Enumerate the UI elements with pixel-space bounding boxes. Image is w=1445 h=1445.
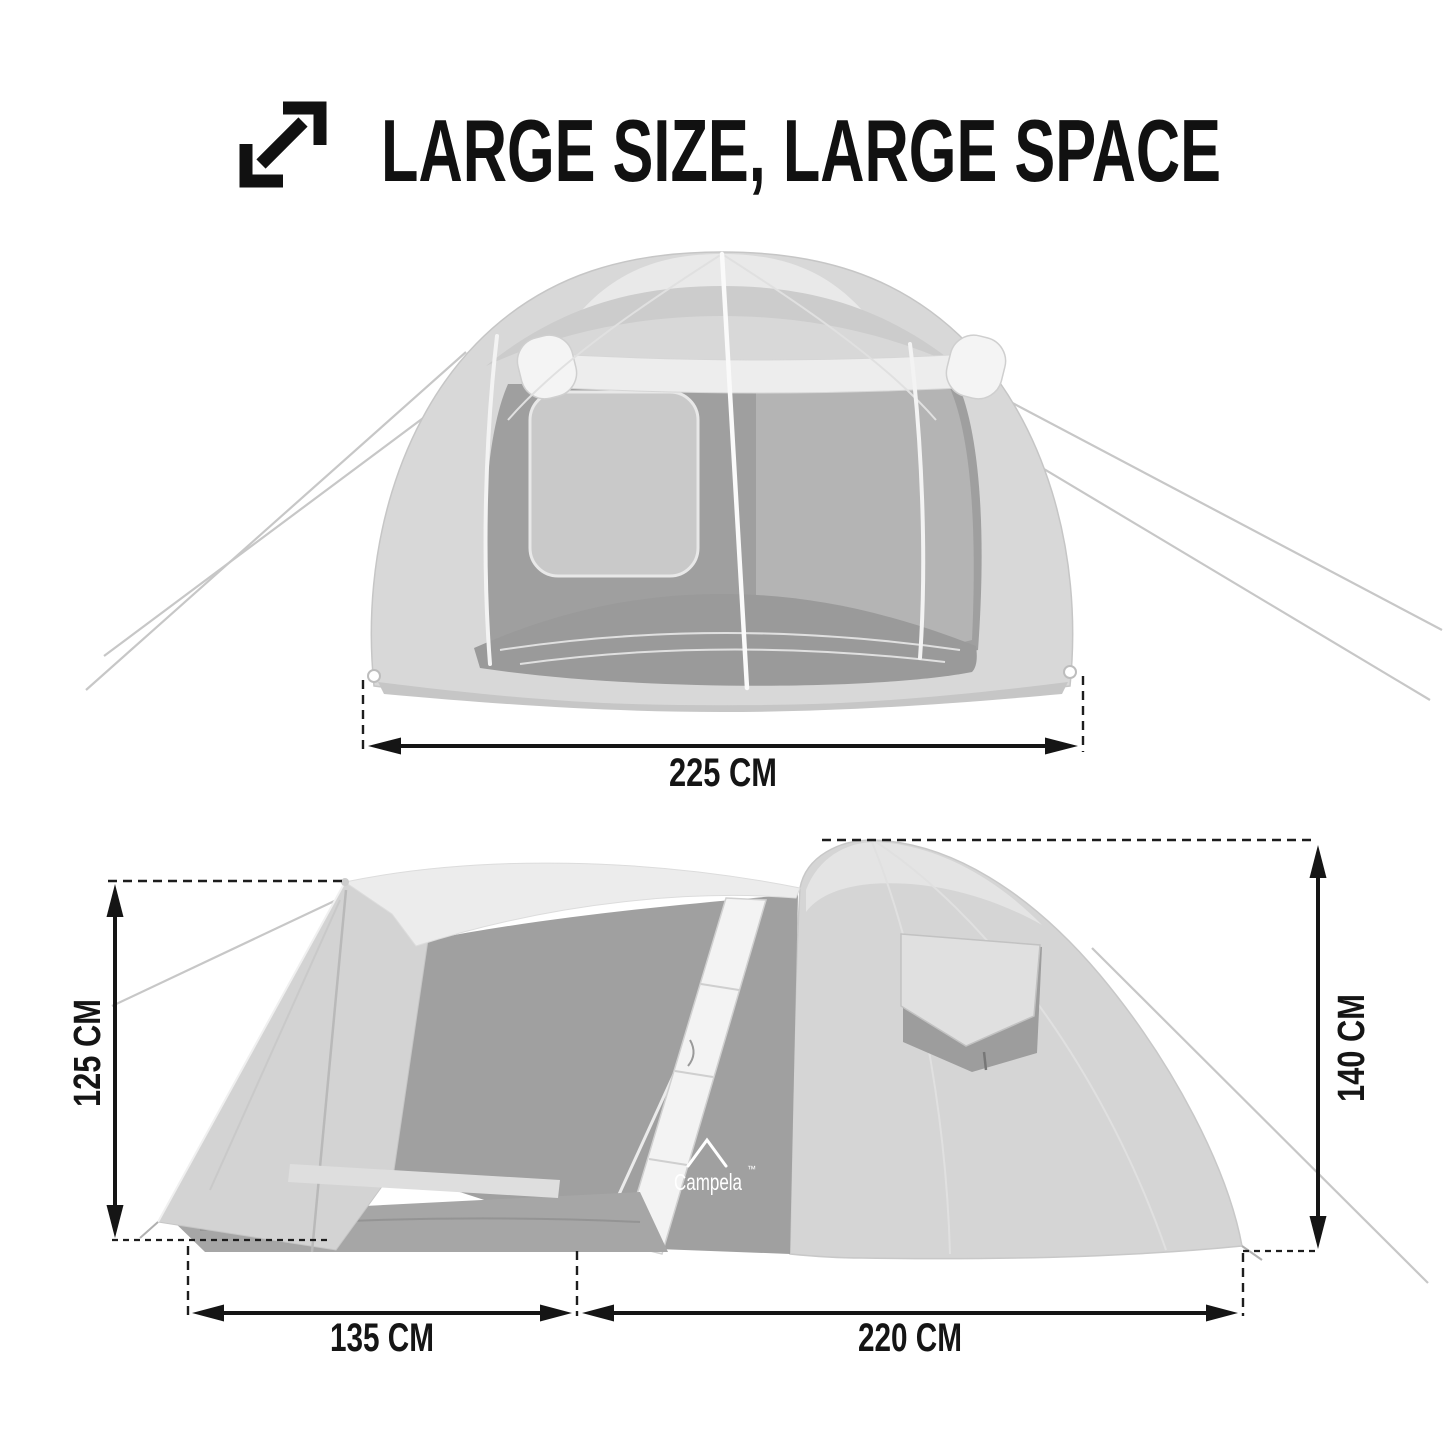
arrowhead-left xyxy=(192,1305,224,1322)
side-tent-peak-cap xyxy=(341,878,349,886)
dome-height-label: 140 CM xyxy=(1331,994,1373,1102)
side-tent-vestibule-panel xyxy=(158,882,428,1252)
arrowhead-right xyxy=(1206,1305,1238,1322)
arrowhead-up xyxy=(1310,845,1327,878)
arrowhead-down xyxy=(107,1205,124,1238)
expand-arrows-icon xyxy=(246,108,320,181)
front-width-label: 225 CM xyxy=(669,751,777,795)
arrowhead-right xyxy=(540,1305,572,1322)
vestibule-height-label: 125 CM xyxy=(67,999,109,1107)
side-view-tent: Campela ™ xyxy=(112,840,1428,1283)
arrowhead-left xyxy=(582,1305,614,1322)
brand-logo-trademark: ™ xyxy=(747,1164,756,1174)
arrowhead-up xyxy=(107,884,124,917)
product-dimension-infographic: LARGE SIZE, LARGE SPACE xyxy=(0,0,1445,1445)
header: LARGE SIZE, LARGE SPACE xyxy=(246,101,1221,200)
dome-length-label: 220 CM xyxy=(858,1316,962,1360)
arrowhead-left xyxy=(368,738,401,755)
front-view-tent xyxy=(86,252,1442,712)
arrowhead-right xyxy=(1045,738,1078,755)
page-title: LARGE SIZE, LARGE SPACE xyxy=(381,101,1221,200)
vestibule-length-label: 135 CM xyxy=(330,1316,434,1360)
dim-side-dome-length: 220 CM xyxy=(582,1253,1243,1360)
dim-side-vestibule-length: 135 CM xyxy=(188,1246,577,1360)
arrowhead-down xyxy=(1310,1216,1327,1249)
front-tent-window xyxy=(530,392,698,576)
brand-logo-text: Campela xyxy=(674,1169,742,1195)
